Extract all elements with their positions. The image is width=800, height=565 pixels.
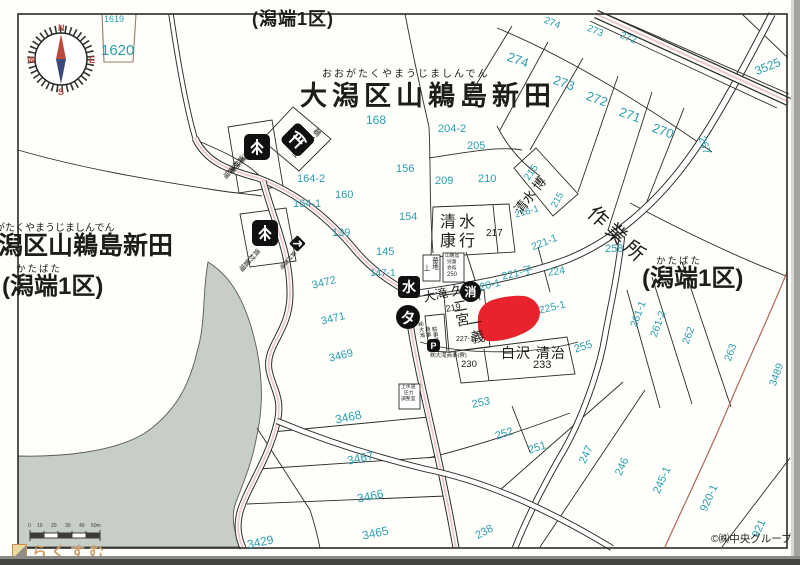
lumber-yard-icon: [244, 134, 270, 165]
parking-badge: P: [427, 339, 440, 352]
parcel-230: 230: [461, 360, 477, 370]
parcel-168: 168: [366, 114, 386, 126]
left-district-label: (潟端1区): [2, 275, 103, 299]
compass-s: S: [58, 87, 64, 97]
parcel-224: 224: [547, 266, 566, 279]
parcel-204-2: 204-2: [438, 124, 466, 135]
scale-tick-0: 0: [28, 523, 31, 529]
waterworks-line3: 調整室: [401, 398, 415, 403]
parcel-210: 210: [478, 174, 496, 185]
parcel-156: 156: [396, 164, 414, 175]
scale-tick-40: 40: [79, 523, 85, 529]
parcel-160: 160: [335, 190, 353, 201]
scale-tick-20: 20: [51, 523, 57, 529]
compass-rose: N E S W: [25, 21, 97, 97]
cemetery-symbol: ⊥: [423, 264, 431, 273]
scale-tick-30: 30: [65, 523, 71, 529]
scan-edge-bottom: [0, 559, 800, 565]
right-district-label: (潟端1区): [642, 267, 743, 291]
hall-number-250: 250: [447, 272, 457, 278]
compass-w: W: [27, 55, 36, 65]
owner-shirasawa-seiji: 白沢 清治: [501, 346, 566, 360]
otaki-dorm-note: ㈱大滝商事(寮): [430, 354, 467, 360]
compass-e: E: [89, 55, 95, 65]
taxi-badge: タ: [396, 305, 420, 329]
parcel-164-2: 164-2: [297, 174, 325, 185]
scan-edge-right: [794, 0, 800, 565]
scale-tick-50m: 50m: [91, 523, 101, 529]
parcel-139: 139: [332, 228, 350, 239]
parcel-217: 217: [486, 229, 503, 239]
parcel-154: 154: [399, 212, 417, 223]
cadastral-map-page: (潟端1区) おおがたくやまうじましんでん 大潟区山鵜島新田 おおがたくやまうじ…: [0, 0, 800, 565]
district-boundary-red-line: [665, 272, 787, 547]
lake-area: [18, 262, 261, 547]
highlighted-parcel: [478, 296, 540, 341]
copyright-notice: ©㈱中央グループ: [711, 531, 792, 546]
left-title: 大潟区山鵜島新田: [0, 234, 173, 259]
fire-hydrant-badge: 消: [460, 281, 481, 302]
map-title: 大潟区山鵜島新田: [300, 83, 556, 110]
parcel-233: 233: [533, 360, 551, 371]
lumber-yard-icon-2: [252, 220, 278, 251]
district-label-top: (潟端1区): [252, 10, 334, 28]
parcel-1620: 1620: [101, 43, 134, 58]
scale-tick-10: 10: [37, 523, 43, 529]
parking-note-2: 商事: [423, 326, 430, 338]
parcel-1619: 1619: [104, 15, 124, 24]
compass-n: N: [58, 23, 65, 33]
map-title-furigana: おおがたくやまうじましんでん: [322, 70, 490, 80]
parcel-205: 205: [467, 141, 485, 152]
parcel-209: 209: [435, 176, 453, 187]
parcel-145: 145: [376, 247, 394, 258]
parcel-147-1: 147-1: [370, 269, 396, 279]
water-supply-badge: 水: [398, 276, 420, 298]
parcel-164-1: 164-1: [293, 199, 321, 210]
owner-shimizu-yasuyuki: 清水 康行: [440, 213, 478, 251]
